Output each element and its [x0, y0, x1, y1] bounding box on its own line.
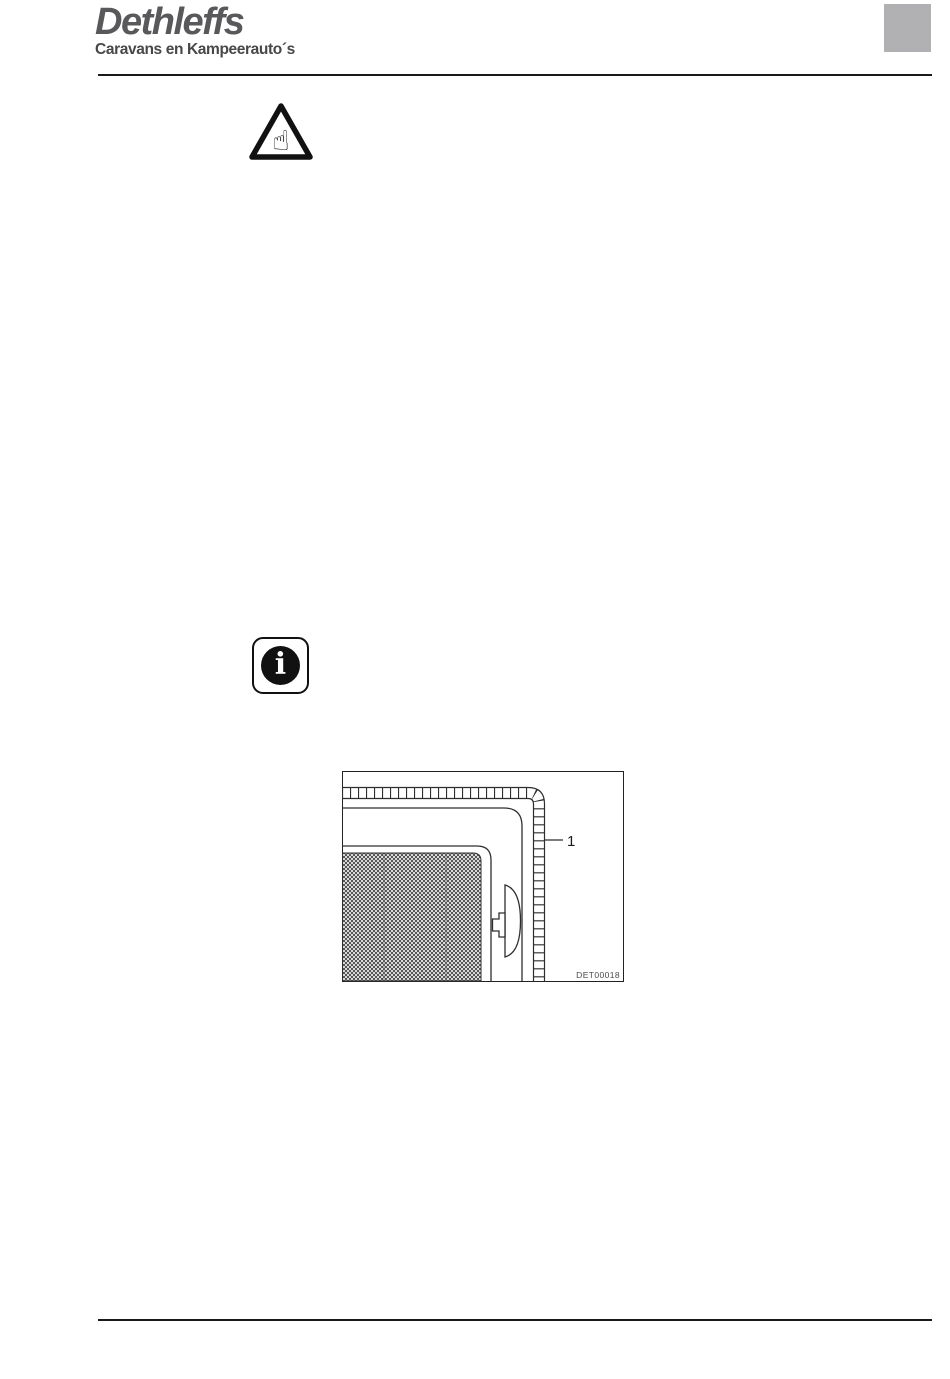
window-seal-figure: 1 DET00018: [342, 771, 624, 982]
info-icon-glyph: i: [275, 650, 286, 680]
manual-page: Dethleffs Caravans en Kampeerauto´s ☝ i: [0, 0, 950, 1379]
brand-tagline: Caravans en Kampeerauto´s: [95, 41, 295, 59]
brand-logo: Dethleffs Caravans en Kampeerauto´s: [95, 4, 301, 59]
warning-hand-glyph: ☝: [272, 124, 289, 157]
flyscreen-mesh: [343, 853, 482, 981]
chapter-tab-box: [884, 4, 931, 52]
figure-caption: DET00018: [576, 970, 620, 980]
callout-label: 1: [567, 833, 575, 850]
brand-name: Dethleffs: [95, 4, 301, 40]
header-rule: [98, 74, 932, 76]
footer-rule: [98, 1319, 932, 1321]
info-icon: i: [252, 637, 309, 694]
warning-hand-triangle-icon: ☝: [248, 101, 314, 165]
info-icon-circle: i: [261, 646, 300, 685]
